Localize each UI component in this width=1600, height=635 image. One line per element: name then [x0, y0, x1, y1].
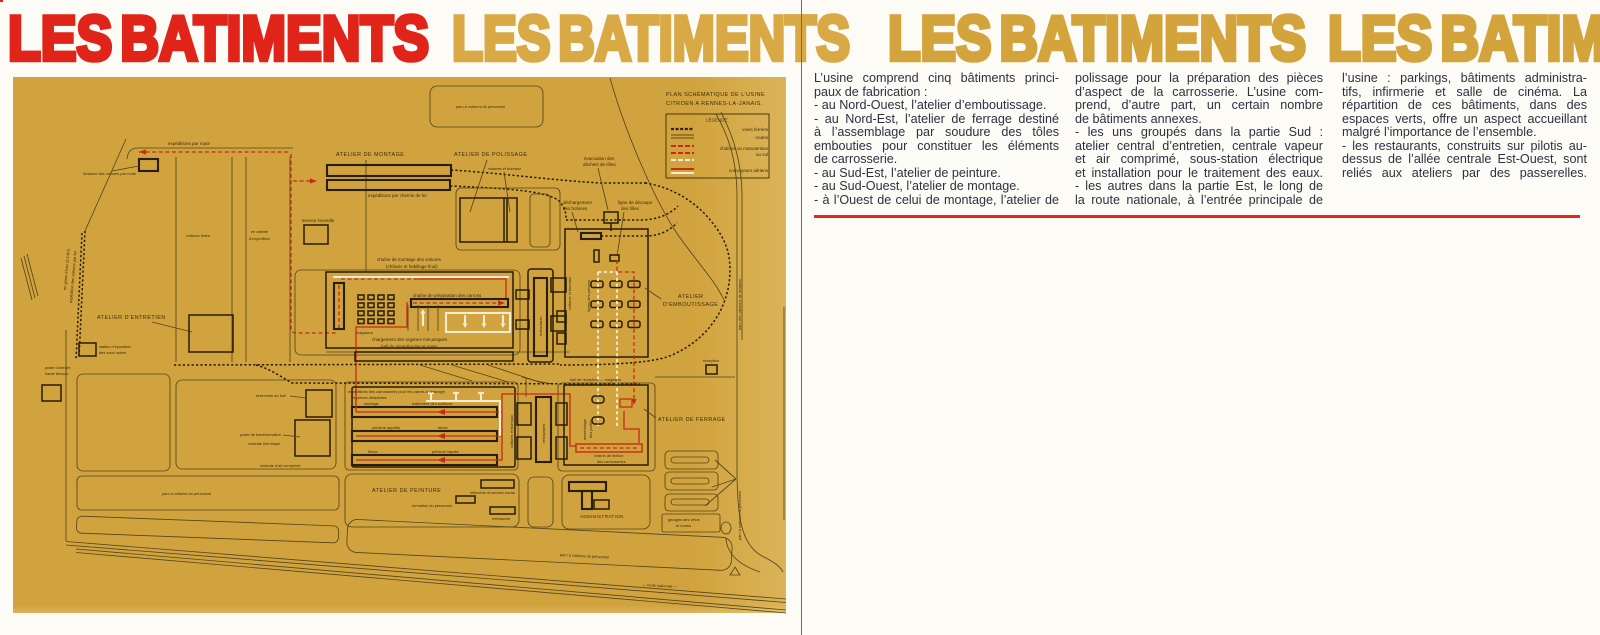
svg-text:en attente: en attente	[251, 229, 268, 234]
svg-text:hall de réception — magasins: hall de réception — magasins	[570, 377, 621, 382]
svg-text:parc à voitures du personnel: parc à voitures du personnel	[162, 491, 211, 496]
svg-text:étuve: étuve	[438, 425, 448, 430]
svg-text:et motos: et motos	[676, 523, 691, 528]
svg-text:restaurants: restaurants	[541, 423, 546, 443]
svg-text:poste de transformation: poste de transformation	[240, 432, 281, 437]
svg-text:centrale d’air comprimé: centrale d’air comprimé	[260, 463, 300, 468]
svg-text:ATELIER DE MONTAGE: ATELIER DE MONTAGE	[336, 152, 404, 158]
svg-text:station d’épuration: station d’épuration	[99, 344, 131, 349]
svg-text:et pièces détachées: et pièces détachées	[352, 395, 387, 400]
svg-text:routes: routes	[755, 135, 768, 140]
svg-text:D’EMBOUTISSAGE: D’EMBOUTISSAGE	[663, 302, 718, 308]
svg-text:étuve: étuve	[368, 449, 378, 454]
svg-text:voitures finies: voitures finies	[186, 233, 210, 238]
svg-text:ATELIER DE FERRAGE: ATELIER DE FERRAGE	[658, 417, 726, 423]
svg-text:parc des camions de livraison: parc des camions de livraison	[737, 279, 742, 330]
svg-text:voitures et bureaux: voitures et bureaux	[509, 415, 514, 448]
svg-text:séchage: séchage	[364, 401, 379, 406]
svg-text:chaîne de montage des voitures: chaîne de montage des voitures	[377, 257, 442, 262]
svg-text:réception: réception	[703, 358, 719, 363]
svg-text:chaînes ou manutention: chaînes ou manutention	[720, 146, 769, 151]
svg-text:livraison des voitures par rou: livraison des voitures par route	[83, 171, 136, 176]
svg-text:LES BATIMENTS: LES BATIMENTS	[888, 4, 1306, 74]
svg-text:ATELIER: ATELIER	[678, 294, 704, 300]
svg-text:lignes des presses: lignes des presses	[586, 280, 591, 312]
svg-text:ATELIER DE PEINTURE: ATELIER DE PEINTURE	[372, 488, 441, 494]
svg-text:chaîne de finition: chaîne de finition	[594, 453, 623, 458]
svg-text:des bobines: des bobines	[563, 206, 588, 211]
svg-text:ATELIER DE POLISSAGE: ATELIER DE POLISSAGE	[454, 152, 527, 158]
svg-text:chargement des organes mécaniq: chargement des organes mécaniques	[372, 337, 448, 342]
svg-text:service incendie: service incendie	[302, 218, 335, 223]
svg-text:expéditions par route: expéditions par route	[168, 141, 211, 146]
svg-text:assemblage: assemblage	[582, 419, 587, 440]
svg-text:traitement des surfaces: traitement des surfaces	[412, 401, 452, 406]
svg-text:magasins: magasins	[356, 330, 373, 335]
svg-text:réservoirs de fuel: réservoirs de fuel	[256, 393, 286, 398]
svg-text:expéditions des carrosseries p: expéditions des carrosseries pour les us…	[348, 389, 446, 394]
svg-text:centrale thermique: centrale thermique	[248, 441, 280, 446]
svg-text:voitures et bureaux: voitures et bureaux	[567, 277, 572, 310]
svg-text:des tôles: des tôles	[621, 206, 640, 211]
svg-text:restaurants: restaurants	[538, 316, 543, 336]
svg-text:des carrosseries: des carrosseries	[597, 459, 626, 464]
svg-text:parc à voitures du personnel: parc à voitures du personnel	[456, 104, 505, 109]
svg-text:au sol: au sol	[756, 152, 768, 157]
svg-text:déchargement: déchargement	[563, 200, 593, 205]
svg-text:(châssis et habillage final): (châssis et habillage final)	[386, 264, 438, 269]
svg-text:ADMINISTRATION: ADMINISTRATION	[580, 514, 624, 519]
svg-text:formation du personnel: formation du personnel	[412, 503, 452, 508]
svg-text:ligne de découpe: ligne de découpe	[618, 200, 653, 205]
svg-text:déchets de tôles: déchets de tôles	[583, 162, 617, 167]
svg-text:voies ferrées: voies ferrées	[742, 127, 769, 132]
svg-text:infirmerie et service social: infirmerie et service social	[470, 490, 515, 495]
svg-text:d’expédition: d’expédition	[249, 236, 270, 241]
svg-text:embauche: embauche	[492, 516, 510, 521]
svg-text:chaîne de préparation des carr: chaîne de préparation des carross	[413, 293, 482, 298]
svg-text:ATELIER D’ENTRETIEN: ATELIER D’ENTRETIEN	[97, 315, 166, 321]
svg-text:PLAN SCHÉMATIQUE DE L’USINE: PLAN SCHÉMATIQUE DE L’USINE	[666, 91, 765, 98]
svg-text:des eaux usées: des eaux usées	[99, 350, 126, 355]
svg-text:LES BATIMENTS: LES BATIMENTS	[1328, 4, 1600, 74]
svg-text:hall du réception fer et route: hall du réception fer et route	[381, 344, 438, 349]
svg-text:expéditions par chemin de fer: expéditions par chemin de fer	[368, 193, 428, 198]
svg-text:peinture apprêts: peinture apprêts	[372, 425, 400, 430]
svg-text:garages des vélos: garages des vélos	[668, 517, 700, 522]
svg-text:CITROEN A RENNES-LA-JANAIS.: CITROEN A RENNES-LA-JANAIS.	[666, 101, 763, 107]
svg-text:peinture laquée: peinture laquée	[432, 449, 459, 454]
svg-text:voitures et bureaux: voitures et bureaux	[488, 166, 521, 171]
svg-text:poste d’arrivée: poste d’arrivée	[45, 365, 71, 370]
svg-text:évacuation des: évacuation des	[584, 156, 615, 161]
svg-text:des portes: des portes	[588, 420, 593, 438]
svg-text:haute tension: haute tension	[45, 371, 68, 376]
